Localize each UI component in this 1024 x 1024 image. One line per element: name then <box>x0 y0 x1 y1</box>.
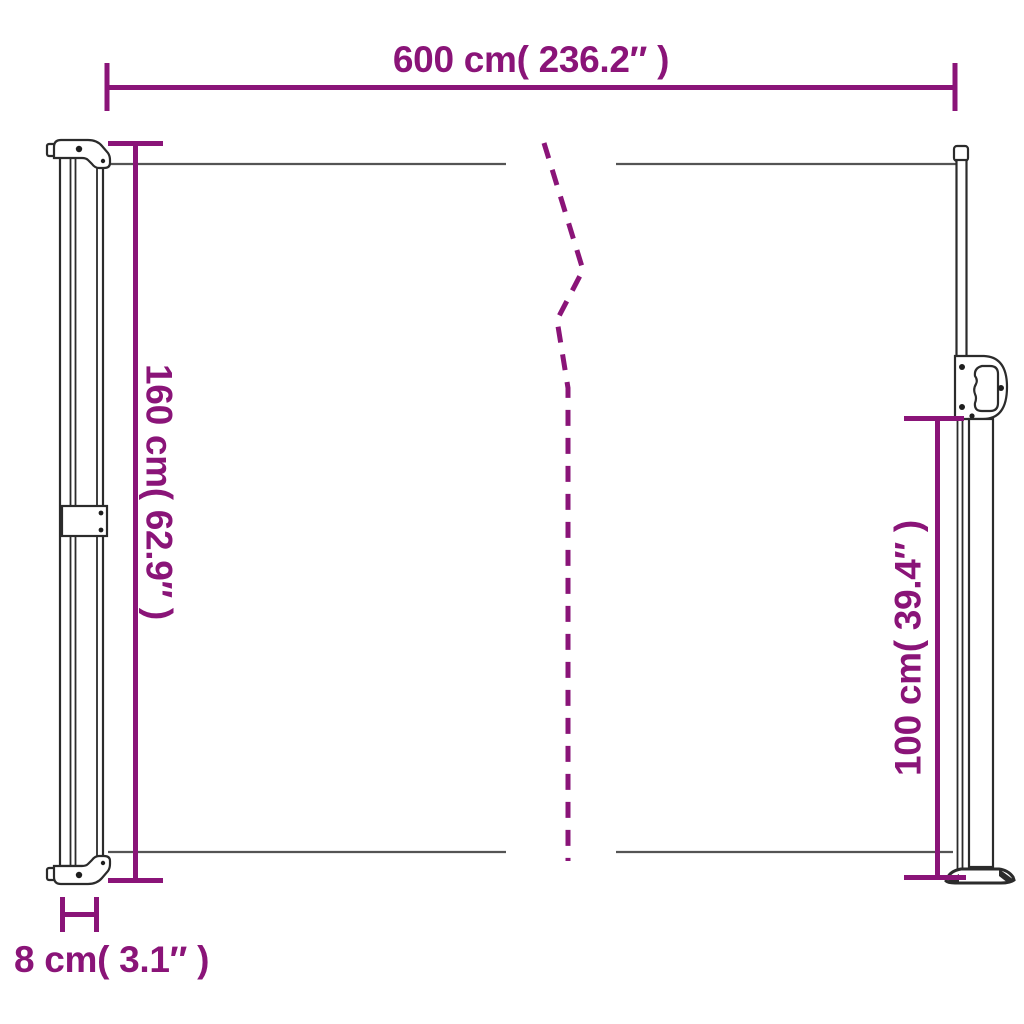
cassette-screw-icon <box>101 159 105 163</box>
handle-screw-icon <box>998 385 1004 391</box>
product-dimension-diagram: 600 cm( 236.2″ ) 160 cm( 62.9″ ) 100 cm(… <box>0 0 1024 1024</box>
pole-rear-rail <box>958 419 963 870</box>
pole-top-cap <box>954 146 968 161</box>
depth-dimension-line <box>62 897 97 932</box>
fabric-break-line <box>544 143 583 861</box>
handle-screw-icon <box>959 364 965 370</box>
cassette-height-dimension-label: 160 cm( 62.9″ ) <box>141 364 178 620</box>
cassette-screw-icon <box>101 861 105 865</box>
support-pole <box>945 146 1014 883</box>
bracket-screw-icon <box>99 511 104 516</box>
pole-lower-tube <box>969 419 993 867</box>
pole-handle-grip-cutout <box>974 366 998 411</box>
pole-upper-rod <box>957 160 967 357</box>
cassette-post <box>47 140 110 884</box>
cassette-screw-icon <box>76 872 82 878</box>
handle-screw-icon <box>959 404 965 410</box>
cassette-screw-icon <box>76 146 82 152</box>
handle-screw-icon <box>969 413 974 418</box>
bracket-screw-icon <box>99 528 104 533</box>
width-dimension-label: 600 cm( 236.2″ ) <box>393 41 669 78</box>
pole-height-dimension-label: 100 cm( 39.4″ ) <box>890 520 927 776</box>
cassette-depth-dimension-label: 8 cm( 3.1″ ) <box>14 941 209 978</box>
